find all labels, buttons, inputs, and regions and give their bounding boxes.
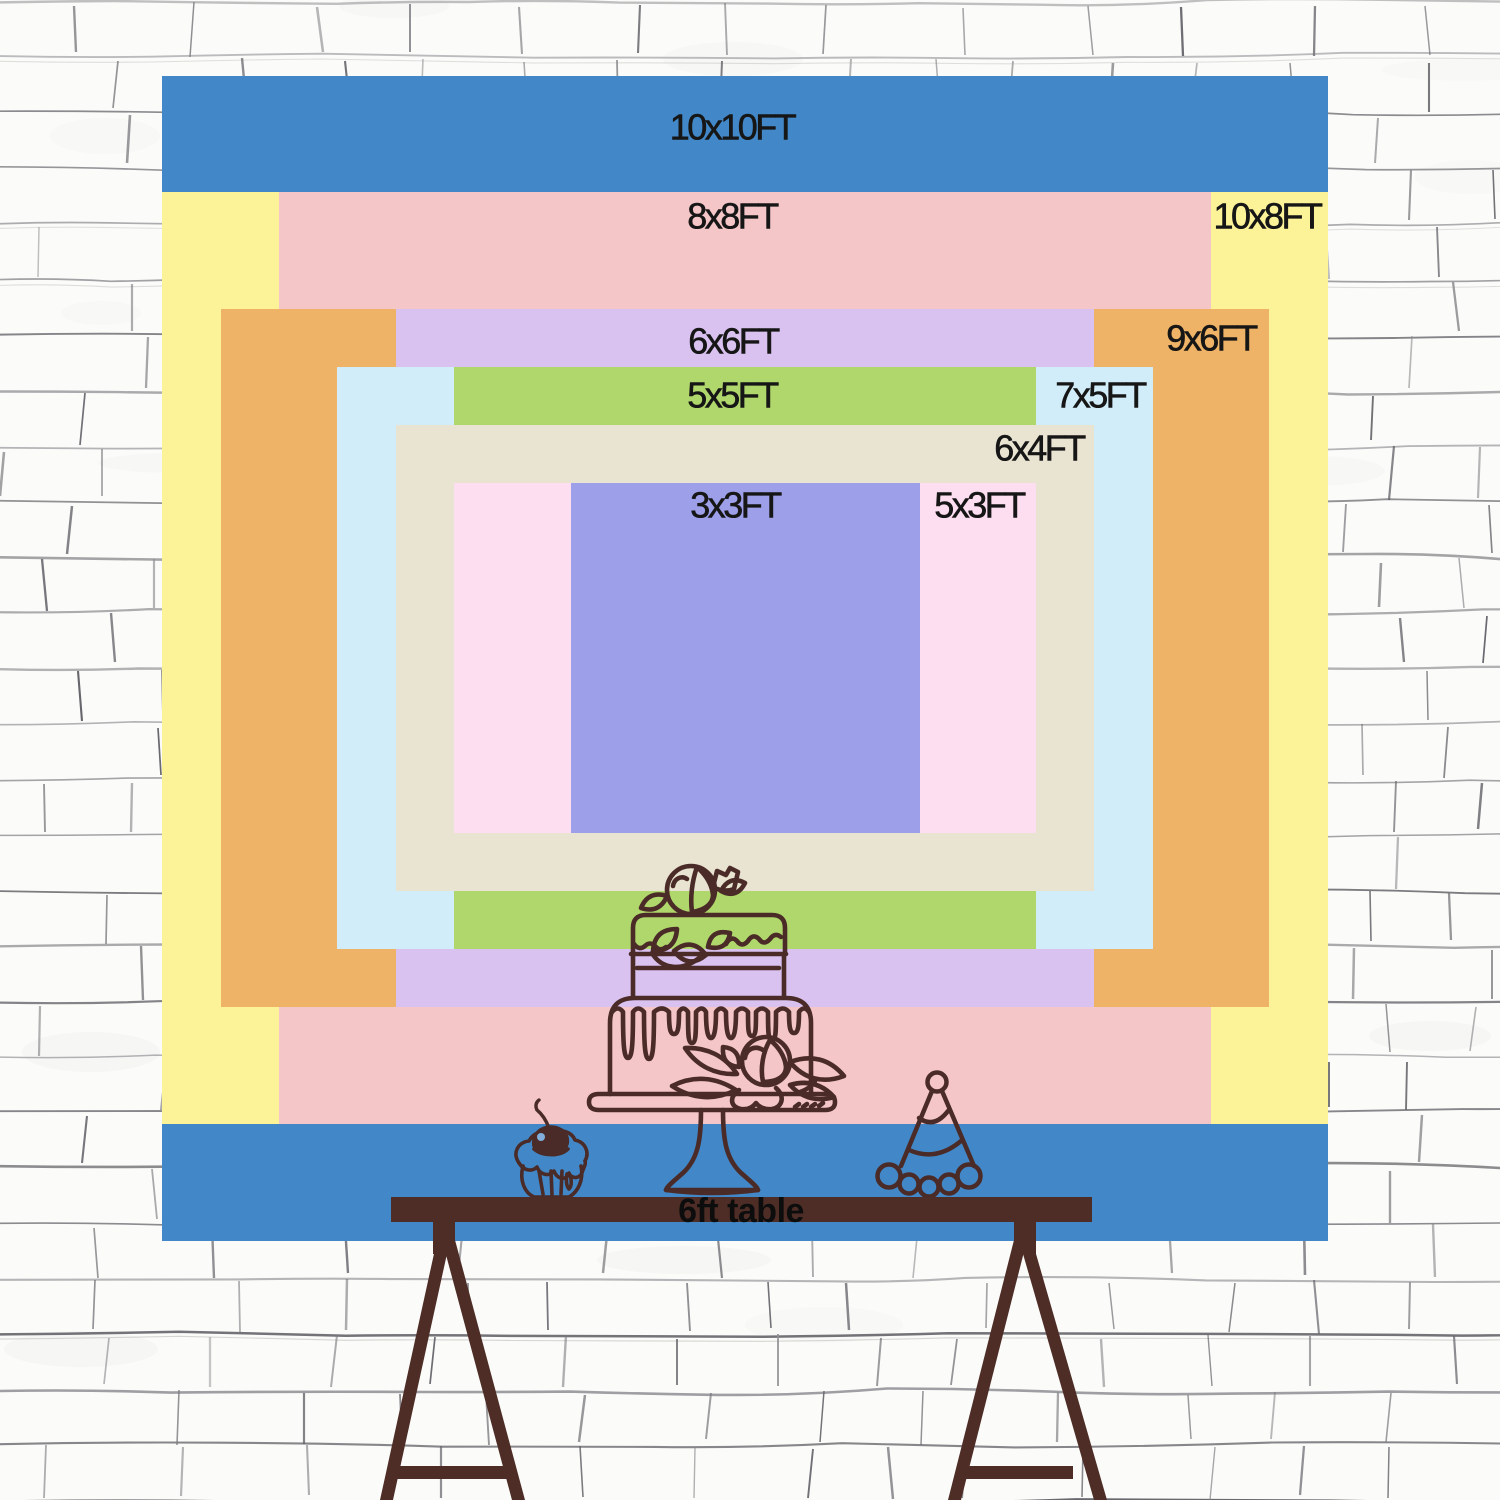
svg-text:5x5FT: 5x5FT bbox=[687, 375, 779, 416]
svg-text:9x6FT: 9x6FT bbox=[1166, 318, 1258, 359]
svg-text:3x3FT: 3x3FT bbox=[690, 485, 782, 526]
svg-text:10x8FT: 10x8FT bbox=[1213, 196, 1323, 237]
svg-text:6x4FT: 6x4FT bbox=[994, 428, 1086, 469]
svg-text:10x10FT: 10x10FT bbox=[670, 107, 797, 148]
svg-text:5x3FT: 5x3FT bbox=[934, 485, 1026, 526]
svg-text:8x8FT: 8x8FT bbox=[687, 196, 779, 237]
svg-text:7x5FT: 7x5FT bbox=[1055, 375, 1147, 416]
svg-text:6ft table: 6ft table bbox=[678, 1192, 804, 1230]
svg-text:6x6FT: 6x6FT bbox=[688, 321, 780, 362]
